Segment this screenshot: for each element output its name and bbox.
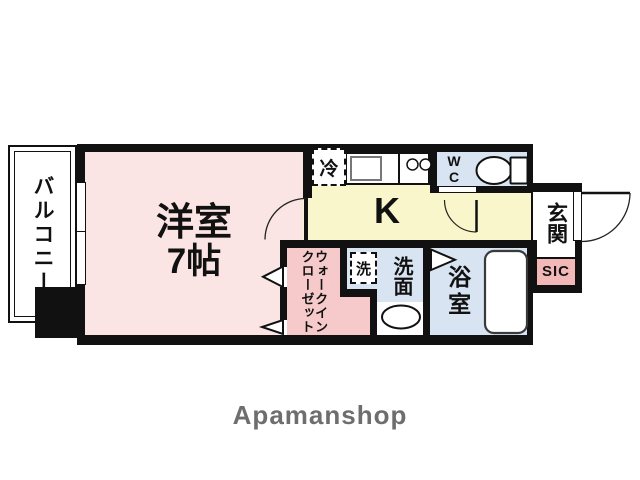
wc-label: WC [442,151,466,187]
wall [370,297,377,335]
wall [340,248,347,289]
walk-in-closet-label-col2: クローゼット [300,250,314,334]
bathroom-label: 浴室 [431,250,484,334]
wall [280,240,533,248]
brand-logo: Apamanshop [0,400,640,431]
living-room-size: 7帖 [167,244,221,281]
wall [423,248,430,335]
walk-in-closet-floor [340,297,370,335]
wall [77,144,85,182]
refrigerator-box: 冷 [312,148,346,186]
wall [477,186,533,193]
wc-door-threshold [438,186,477,193]
washing-machine-label: 洗 [356,258,371,279]
counter-sink [350,156,382,181]
entrance-label: 玄関 [536,192,575,254]
refrigerator-label: 冷 [319,154,338,181]
living-room-name: 洋室 [156,204,232,244]
wall [527,293,533,345]
floorplan-canvas: 冷 洗 バルコニー 洋室 7帖 K [0,0,640,480]
washroom-floor-lower [377,302,423,335]
kitchen-label: K [352,190,422,232]
washroom-label: 洗面 [378,248,423,304]
wall [430,186,438,193]
entrance-door-arc [582,193,631,242]
washing-machine-box: 洗 [350,252,377,284]
kitchen-entrance-step-line [531,192,533,240]
balcony-label: バルコニー [10,150,74,320]
wall [340,289,377,297]
wall [77,335,533,345]
living-room-label: 洋室 7帖 [85,170,303,315]
walk-in-closet-label-col1: ウォークイン [314,250,328,334]
wall [533,285,582,293]
kitchen-floor [430,193,533,240]
shoe-closet-label: SIC [537,259,575,285]
counter-divider-line [398,153,400,184]
walk-in-closet-label: ウォークイン クローゼット [287,250,340,334]
kitchen-floor [303,198,312,240]
wall [303,144,312,198]
